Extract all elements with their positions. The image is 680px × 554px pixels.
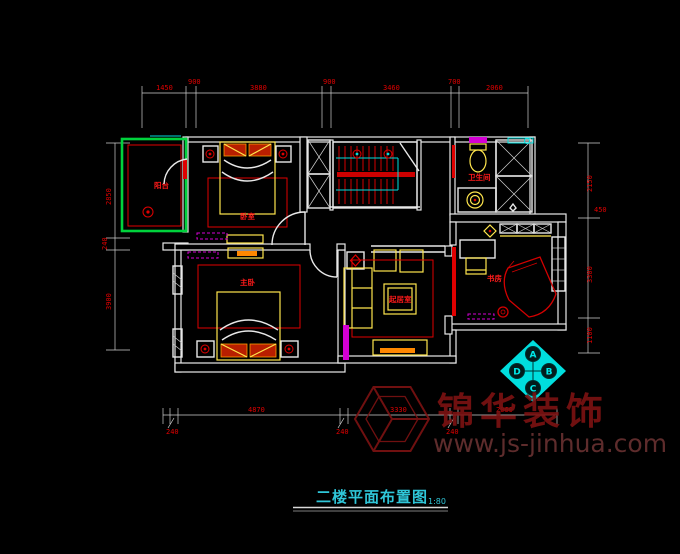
armchair-2 <box>400 250 423 272</box>
toilet-bowl <box>470 150 486 172</box>
compass-letter-d: D <box>513 368 520 378</box>
watermark-logo-icon <box>355 387 429 451</box>
master-wardrobe <box>188 252 218 258</box>
dimension-chain-top: 1450 900 3880 900 3460 700 2060 <box>142 78 528 128</box>
watermark-brand: 锦华装饰 <box>437 390 609 433</box>
room-label-living: 起居室 <box>388 294 412 304</box>
dim-bottom-3: 240 <box>336 428 349 436</box>
title-scale: 1:80 <box>428 497 446 506</box>
dim-top-5: 3460 <box>383 84 400 92</box>
bathroom-door-panel <box>452 145 455 178</box>
balcony-door-panel <box>183 160 187 179</box>
dim-bottom-1: 240 <box>166 428 179 436</box>
master-rug <box>198 265 300 328</box>
bedroom-bench <box>227 235 263 243</box>
bedroom-top: 卧室 <box>197 142 305 245</box>
room-label-balcony: 阳台 <box>154 180 169 190</box>
compass-letter-b: B <box>546 368 553 378</box>
dimension-chain-left: 2850 240 3900 <box>101 143 130 350</box>
dim-top-4: 900 <box>323 78 336 86</box>
master-nightstand-left <box>197 341 214 357</box>
bedroom-nightstand-right <box>276 146 291 162</box>
dim-left-2: 240 <box>101 237 109 250</box>
study-chair <box>466 258 486 274</box>
closet-shelves <box>308 140 330 208</box>
master-bedroom: 主卧 <box>188 248 337 360</box>
stairs-break-line <box>400 143 419 171</box>
dim-left-3: 3900 <box>105 293 113 310</box>
bedroom-nightstand-left <box>203 146 218 162</box>
dim-top-6: 700 <box>448 78 461 86</box>
dim-right-4: 1100 <box>586 327 594 344</box>
room-label-bedroom: 卧室 <box>240 211 255 221</box>
tv-cabinet <box>373 340 427 355</box>
master-nightstand-right <box>281 341 298 357</box>
dim-top-3: 3880 <box>250 84 267 92</box>
watermark: 锦华装饰 www.js-jinhua.com <box>355 387 667 458</box>
shower-cabin <box>496 138 533 212</box>
bathroom: 卫生间 <box>452 137 533 212</box>
bedroom-wardrobe <box>197 233 227 239</box>
piano <box>498 257 556 317</box>
study: 书房 <box>452 224 556 319</box>
room-label-master: 主卧 <box>240 277 255 287</box>
coffee-table: 起居室 <box>384 284 416 314</box>
sliding-door-panel <box>452 247 456 316</box>
dimension-chain-right: 2150 450 3300 1100 <box>578 143 607 353</box>
curtain-strip <box>343 325 349 360</box>
master-bed <box>217 292 280 360</box>
dim-bottom-2: 4870 <box>248 406 265 414</box>
staircase <box>333 142 419 208</box>
dim-bottom-4: 3330 <box>390 406 407 414</box>
floorplan-drawing: 1450 900 3880 900 3460 700 2060 2850 240… <box>0 0 680 554</box>
dim-top-7: 2060 <box>486 84 503 92</box>
dim-top-1: 1450 <box>156 84 173 92</box>
study-desk <box>460 240 495 258</box>
room-label-study: 书房 <box>487 273 502 283</box>
sofa <box>344 268 372 328</box>
watermark-url: www.js-jinhua.com <box>433 429 667 458</box>
living-room: 起居室 <box>343 250 433 360</box>
bedroom-door-arc <box>272 212 305 245</box>
study-shelf-hatch <box>500 224 551 236</box>
dim-right-1: 2150 <box>586 175 594 192</box>
toilet-tank <box>469 137 487 143</box>
shower-drain-icon <box>510 204 516 211</box>
wash-basin <box>458 188 496 212</box>
compass-letter-a: A <box>530 351 537 361</box>
balcony: 阳台 <box>122 136 187 231</box>
title-text: 二楼平面布置图 <box>316 488 428 506</box>
dim-right-2: 450 <box>594 206 607 214</box>
study-wardrobe <box>468 314 494 319</box>
dim-top-2: 900 <box>188 78 201 86</box>
dim-left-1: 2850 <box>105 188 113 205</box>
cad-floorplan-canvas: 1450 900 3880 900 3460 700 2060 2850 240… <box>0 0 680 554</box>
stairs-landing-band <box>337 172 415 177</box>
drawing-title: 二楼平面布置图 1:80 <box>293 488 448 511</box>
dim-right-3: 3300 <box>586 266 594 283</box>
master-door-arc <box>310 250 337 277</box>
room-label-bathroom: 卫生间 <box>468 172 491 182</box>
